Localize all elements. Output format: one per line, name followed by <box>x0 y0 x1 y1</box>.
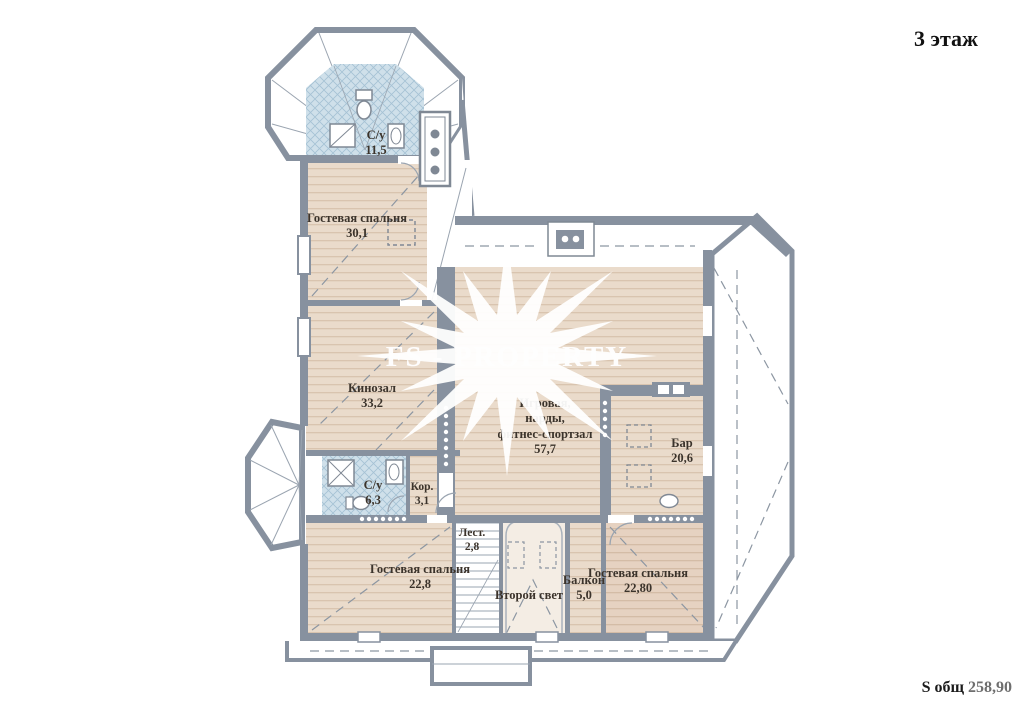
central-block <box>455 225 706 640</box>
page-title: 3 этаж <box>858 26 978 52</box>
total-area-label: S общ <box>922 679 964 696</box>
bottom-roof-band <box>287 641 736 684</box>
total-area-value: 258,90 <box>968 679 1012 696</box>
turret-left <box>248 422 302 548</box>
floorplan-drawing <box>0 0 1027 725</box>
floorplan-page: С/у 11,5 Гостевая спальня 30,1 Кинозал 3… <box>0 0 1027 725</box>
total-area: S общ 258,90 <box>840 679 1012 697</box>
right-roof <box>712 216 792 641</box>
